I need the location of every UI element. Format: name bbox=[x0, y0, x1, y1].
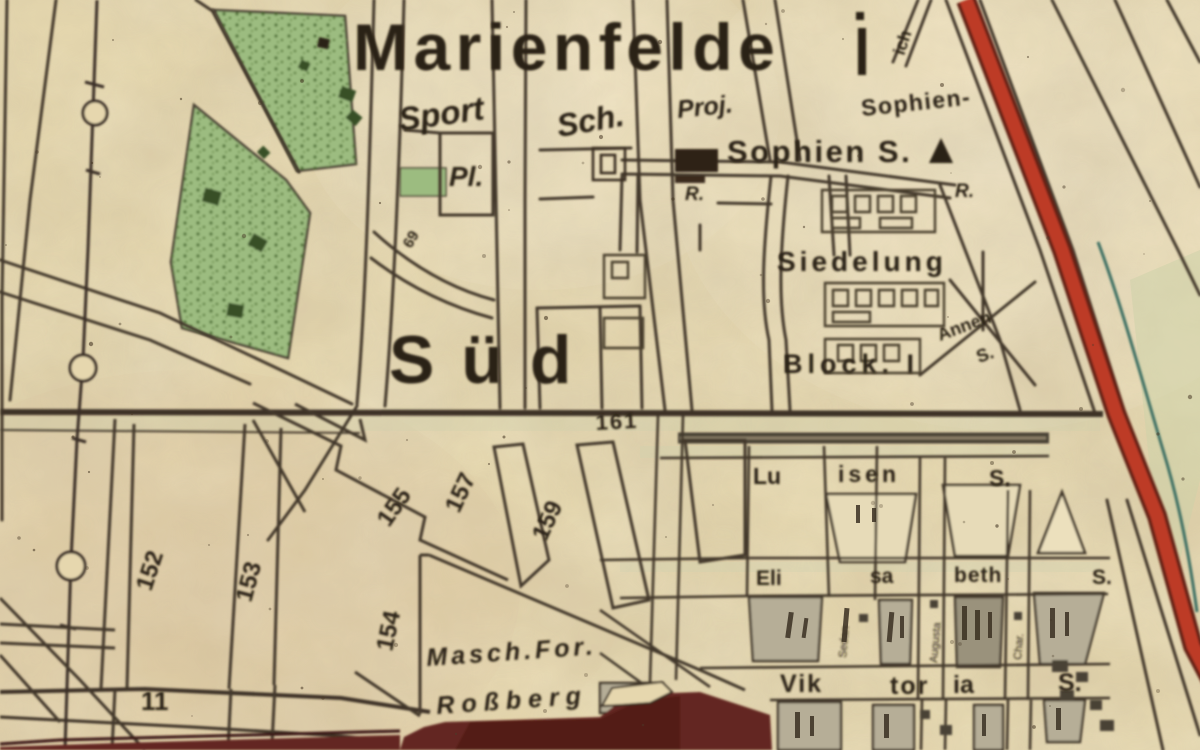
svg-text:Marienfelde: Marienfelde bbox=[353, 10, 780, 84]
svg-text:Block. I: Block. I bbox=[783, 349, 919, 379]
svg-text:S.: S. bbox=[989, 465, 1011, 491]
svg-text:161: 161 bbox=[595, 408, 639, 435]
svg-text:Sophien S.: Sophien S. bbox=[727, 134, 912, 169]
svg-text:Char.: Char. bbox=[1012, 633, 1026, 660]
svg-text:Siedelung: Siedelung bbox=[777, 246, 947, 277]
svg-text:R.: R. bbox=[955, 181, 974, 202]
svg-text:isen: isen bbox=[838, 461, 900, 487]
svg-text:Lu: Lu bbox=[753, 463, 781, 489]
svg-text:S.: S. bbox=[1058, 669, 1082, 697]
svg-text:beth: beth bbox=[954, 564, 1002, 587]
svg-text:sa: sa bbox=[870, 565, 894, 588]
svg-text:R.: R. bbox=[685, 184, 704, 205]
svg-text:11: 11 bbox=[141, 686, 169, 716]
svg-text:S.: S. bbox=[1092, 566, 1112, 589]
svg-text:tor: tor bbox=[890, 672, 929, 700]
svg-text:ia: ia bbox=[953, 671, 975, 699]
svg-text:Süd: Süd bbox=[389, 322, 598, 398]
svg-text:Eli: Eli bbox=[756, 567, 782, 590]
svg-text:Pl.: Pl. bbox=[449, 161, 483, 192]
svg-text:Proj.: Proj. bbox=[676, 90, 734, 124]
svg-text:Vik: Vik bbox=[780, 670, 823, 698]
